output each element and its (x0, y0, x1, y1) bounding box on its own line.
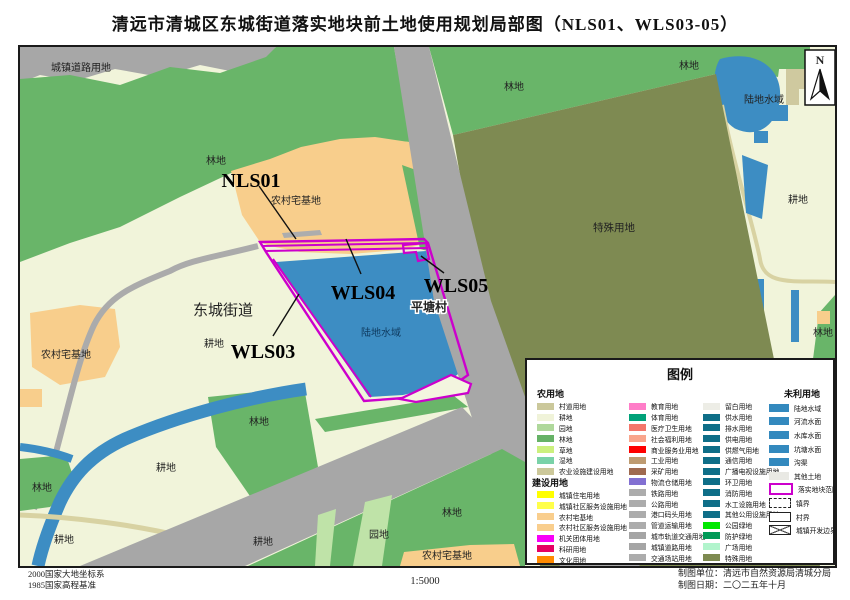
legend-swatch (703, 478, 720, 485)
legend-item: 河流水面 (769, 415, 835, 429)
legend-swatch (703, 414, 720, 421)
label-forest-3: 林地 (679, 59, 699, 72)
label-cropland-1: 耕地 (204, 337, 224, 350)
legend-item-label: 供燃气用地 (725, 445, 759, 455)
label-forest-6: 林地 (442, 506, 462, 519)
legend-swatch (537, 545, 554, 552)
legend-item-label: 坑塘水面 (794, 444, 821, 454)
label-parcel-wls03: WLS03 (231, 341, 295, 363)
legend-swatch (703, 468, 720, 475)
legend-swatch (629, 522, 646, 529)
legend-swatch (629, 414, 646, 421)
legend-swatch (537, 513, 554, 520)
legend-item-label: 排水用地 (725, 423, 752, 433)
legend-item: 园地 (537, 423, 629, 434)
legend-item-label: 商业服务业用地 (651, 445, 699, 455)
legend-swatch (537, 556, 554, 563)
legend-swatch (703, 424, 720, 431)
label-parcel-nls01: NLS01 (222, 170, 281, 192)
legend-item-label: 广场用地 (725, 542, 752, 552)
legend-swatch (537, 502, 554, 509)
legend-item: 草地 (537, 444, 629, 455)
legend-item-label: 镇界 (796, 498, 810, 508)
legend-swatch (629, 554, 646, 561)
legend-item: 机关团体用地 (537, 533, 629, 544)
legend-item-label: 通信用地 (725, 455, 752, 465)
legend-swatch (629, 500, 646, 507)
legend-item-label: 机关团体用地 (559, 533, 600, 543)
label-homestead-2: 农村宅基地 (41, 348, 91, 361)
label-water-body: 陆地水域 (361, 326, 401, 339)
legend-item-label: 城市轨道交通用地 (651, 531, 705, 541)
label-dongcheng-street: 东城街道 (193, 302, 253, 319)
legend-item: 村道用地 (537, 401, 629, 412)
legend-item-label: 物流仓储用地 (651, 477, 692, 487)
legend-item-label: 水工设施用地 (725, 499, 766, 509)
legend-item-label: 体育用地 (651, 412, 678, 422)
legend-item-label: 城镇道路用地 (651, 542, 692, 552)
legend-swatch (629, 543, 646, 550)
legend-item-label: 落实地块范围 (798, 484, 835, 494)
legend-item-label: 沟渠 (794, 457, 808, 467)
legend-item: 镇界 (769, 496, 835, 510)
legend-item-label: 园地 (559, 423, 573, 433)
legend-item-label: 工业用地 (651, 455, 678, 465)
legend-swatch (769, 458, 789, 466)
legend-item-label: 教育用地 (651, 401, 678, 411)
legend-item-label: 铁路用地 (651, 488, 678, 498)
legend-swatch (629, 489, 646, 496)
legend-item-label: 农村社区服务设施用地 (559, 522, 627, 532)
legend-swatch (769, 525, 791, 535)
legend-swatch (703, 489, 720, 496)
legend-swatch (769, 445, 789, 453)
homestead-blob-small (20, 389, 42, 407)
legend-item-label: 采矿用地 (651, 466, 678, 476)
label-homestead-1: 农村宅基地 (271, 194, 321, 207)
legend-item-label: 城镇社区服务设施用地 (559, 501, 627, 511)
legend-item: 农村宅基地 (537, 511, 629, 522)
legend-item-label: 草地 (559, 445, 573, 455)
label-cropland-4: 耕地 (253, 535, 273, 548)
legend-swatch (703, 446, 720, 453)
pond-notch-2 (754, 131, 768, 143)
legend-item-label: 村道用地 (559, 401, 586, 411)
legend-swatch (629, 511, 646, 518)
legend-swatch (537, 403, 554, 410)
planning-map-page: 清远市清城区东城街道落实地块前土地使用规划局部图（NLS01、WLS03-05） (0, 0, 850, 600)
legend-item: 落实地块范围 (769, 483, 835, 497)
legend-title: 图例 (527, 364, 833, 383)
label-forest-5: 林地 (32, 481, 52, 494)
legend-item: 陆地水域 (769, 401, 835, 415)
label-cropland-2: 耕地 (156, 461, 176, 474)
label-cropland-3: 耕地 (54, 533, 74, 546)
legend-item: 城镇开发边界 (769, 523, 835, 537)
legend-swatch (769, 404, 789, 412)
legend-item: 耕地 (537, 412, 629, 423)
legend-item: 城镇住宅用地 (537, 490, 629, 501)
legend-swatch (629, 468, 646, 475)
legend-column-4: 未利用地 陆地水域 河流水面 水库水面 (769, 388, 835, 561)
legend-item-label: 环卫用地 (725, 477, 752, 487)
legend-item-label: 供电用地 (725, 434, 752, 444)
legend-swatch (629, 457, 646, 464)
legend-list-construction: 城镇住宅用地 城镇社区服务设施用地 农村宅基地 农村社区服务设施 (537, 490, 629, 565)
legend-swatch (769, 498, 791, 508)
legend-item: 沟渠 (769, 455, 835, 469)
legend-item-label: 农村宅基地 (559, 512, 593, 522)
label-homestead-3: 农村宅基地 (422, 549, 472, 562)
legend-item-label: 留白用地 (725, 401, 752, 411)
legend-header-construction: 建设用地 (532, 477, 629, 490)
legend-swatch (769, 472, 789, 480)
legend-item-label: 农业设施建设用地 (559, 466, 613, 476)
legend-swatch (769, 431, 789, 439)
legend-swatch (703, 511, 720, 518)
label-forest-4: 林地 (249, 415, 269, 428)
legend-item-label: 其他土地 (794, 471, 821, 481)
pond-notch (768, 105, 788, 121)
stream-thin (791, 290, 799, 342)
page-title: 清远市清城区东城街道落实地块前土地使用规划局部图（NLS01、WLS03-05） (0, 10, 850, 35)
legend-swatch (703, 543, 720, 550)
legend-swatch (769, 417, 789, 425)
legend-item-label: 城镇住宅用地 (559, 490, 600, 500)
legend-header-unused: 未利用地 (769, 388, 835, 401)
label-urban-road: 城镇道路用地 (51, 61, 111, 74)
label-cropland-right: 耕地 (788, 193, 808, 206)
legend-swatch (629, 435, 646, 442)
label-parcel-wls05: WLS05 (424, 275, 488, 297)
label-pingtang-village: 平塘村 (411, 299, 447, 314)
legend-item: 农村社区服务设施用地 (537, 522, 629, 533)
legend-swatch (537, 457, 554, 464)
legend-swatch (769, 483, 793, 495)
legend-item-label: 林地 (559, 434, 573, 444)
legend-swatch (703, 522, 720, 529)
agency-line: 制图单位：清远市自然资源局清城分局 (678, 567, 831, 579)
label-parcel-wls04: WLS04 (331, 282, 395, 304)
legend-swatch (537, 491, 554, 498)
homestead-bit-right (817, 311, 830, 324)
legend-swatch (537, 535, 554, 542)
label-forest-2: 林地 (504, 80, 524, 93)
legend-item-label: 城镇开发边界 (796, 525, 835, 535)
label-forest-1: 林地 (206, 154, 226, 167)
legend-swatch (703, 457, 720, 464)
label-special-use: 特殊用地 (593, 221, 635, 234)
north-label: N (816, 53, 825, 67)
legend-swatch (537, 524, 554, 531)
legend-item: 林地 (537, 433, 629, 444)
legend-item-label: 社会福利用地 (651, 434, 692, 444)
legend-list-unused: 陆地水域 河流水面 水库水面 坑塘水面 (769, 401, 835, 537)
label-forest-7: 林地 (813, 326, 833, 339)
legend-item: 城镇社区服务设施用地 (537, 500, 629, 511)
legend-item: 科研用地 (537, 544, 629, 555)
legend-swatch (703, 435, 720, 442)
legend-swatch (537, 468, 554, 475)
legend-swatch (629, 532, 646, 539)
legend-swatch (537, 435, 554, 442)
legend-item-label: 水库水面 (794, 430, 821, 440)
label-pond: 陆地水域 (744, 93, 784, 106)
legend-item-label: 防护绿地 (725, 531, 752, 541)
legend-swatch (629, 403, 646, 410)
legend-item-label: 消防用地 (725, 488, 752, 498)
legend-item-label: 医疗卫生用地 (651, 423, 692, 433)
legend-item-label: 供水用地 (725, 412, 752, 422)
legend-item-label: 特殊用地 (725, 553, 752, 563)
legend-swatch (537, 414, 554, 421)
compass-rose: N (805, 50, 835, 105)
legend-swatch (703, 500, 720, 507)
legend-item: 农业设施建设用地 (537, 466, 629, 477)
legend-panel: 图例 农用地 村道用地 耕地 园地 (525, 358, 835, 565)
legend-item-label: 村界 (796, 512, 810, 522)
map-credits: 制图单位：清远市自然资源局清城分局 制图日期：二〇二五年十月 (678, 567, 831, 591)
legend-swatch (629, 446, 646, 453)
legend-item-label: 河流水面 (794, 416, 821, 426)
legend-item-label: 陆地水域 (794, 403, 821, 413)
legend-item-label: 文化用地 (559, 555, 586, 565)
legend-list-agricultural: 村道用地 耕地 园地 林地 (537, 401, 629, 477)
legend-item-label: 科研用地 (559, 544, 586, 554)
legend-item: 村界 (769, 510, 835, 524)
legend-item: 文化用地 (537, 554, 629, 565)
legend-swatch (629, 478, 646, 485)
legend-item-label: 耕地 (559, 412, 573, 422)
legend-header-agricultural: 农用地 (537, 388, 629, 401)
date-line: 制图日期：二〇二五年十月 (678, 579, 831, 591)
legend-swatch (629, 424, 646, 431)
legend-swatch (537, 446, 554, 453)
legend-item-label: 公路用地 (651, 499, 678, 509)
legend-item: 其他土地 (769, 469, 835, 483)
legend-item-label: 交通场站用地 (651, 553, 692, 563)
legend-swatch (703, 554, 720, 561)
legend-item: 水库水面 (769, 428, 835, 442)
label-orchard: 园地 (369, 528, 389, 541)
legend-swatch (703, 532, 720, 539)
legend-item-label: 港口码头用地 (651, 509, 692, 519)
legend-swatch (703, 403, 720, 410)
legend-item-label: 公园绿地 (725, 520, 752, 530)
legend-column-1: 农用地 村道用地 耕地 园地 (537, 388, 629, 561)
legend-swatch (769, 512, 791, 522)
legend-swatch (537, 424, 554, 431)
legend-item: 坑塘水面 (769, 442, 835, 456)
legend-item-label: 管道运输用地 (651, 520, 692, 530)
legend-item: 湿地 (537, 455, 629, 466)
legend-item-label: 湿地 (559, 455, 573, 465)
